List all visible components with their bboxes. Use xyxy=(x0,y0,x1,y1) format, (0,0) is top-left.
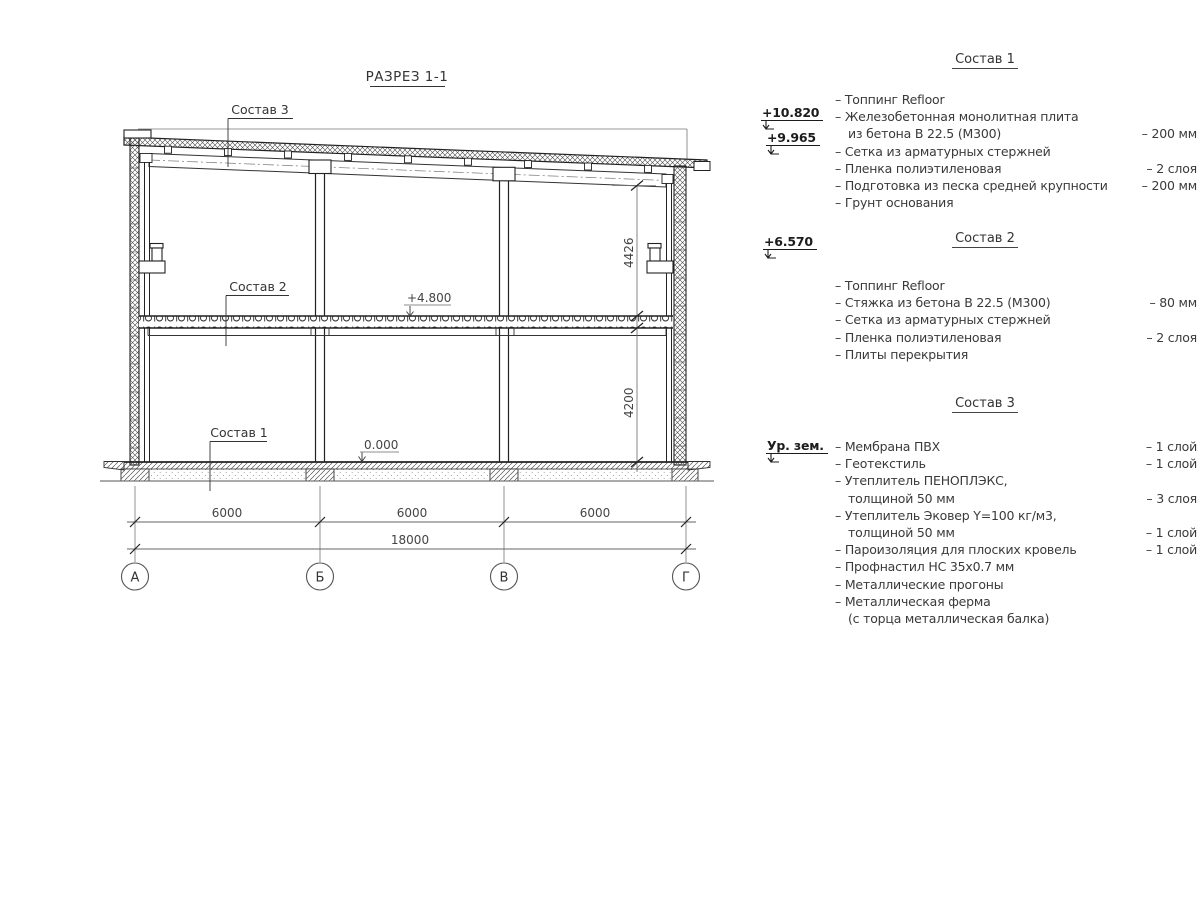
elevation-mark-value: +9.965 xyxy=(766,130,820,146)
composition-item-text: – Пленка полиэтиленовая xyxy=(835,160,1146,177)
composition-item: толщиной 50 мм – 3 слоя xyxy=(835,490,1197,507)
composition-item: – Пленка полиэтиленовая – 2 слоя xyxy=(835,329,1197,346)
composition-item: из бетона В 22.5 (М300) – 200 мм xyxy=(835,125,1197,142)
composition-item-text: – Сетка из арматурных стержней xyxy=(835,311,1197,328)
composition-item-text: толщиной 50 мм xyxy=(835,490,1146,507)
axis-bubbles: А Б В Г xyxy=(122,563,700,590)
composition-item-text: толщиной 50 мм xyxy=(835,524,1146,541)
composition-item-text: – Мембрана ПВХ xyxy=(835,438,1146,455)
composition-item: толщиной 50 мм – 1 слой xyxy=(835,524,1197,541)
dim-total: 18000 xyxy=(391,533,429,547)
composition-item-text: – Плиты перекрытия xyxy=(835,346,1197,363)
right-corbel xyxy=(647,244,673,274)
label-sostav-1: Состав 1 xyxy=(210,425,267,440)
svg-text:РАЗРЕЗ 1-1: РАЗРЕЗ 1-1 xyxy=(366,69,449,85)
composition-item-text: из бетона В 22.5 (М300) xyxy=(835,125,1142,142)
composition-item-qty: – 2 слоя xyxy=(1146,160,1197,177)
elevation-arrow-icon xyxy=(767,453,783,465)
composition-item: – Плиты перекрытия xyxy=(835,346,1197,363)
elevation-mark-value: Ур. зем. xyxy=(766,438,828,454)
elevation-mark-value: +6.570 xyxy=(763,234,817,250)
elevation-arrow-icon xyxy=(767,145,783,157)
composition-item-text: – Подготовка из песка средней крупности xyxy=(835,177,1142,194)
composition-item: – Геотекстиль – 1 слой xyxy=(835,455,1197,472)
composition-item-text: – Металлические прогоны xyxy=(835,576,1197,593)
composition-item-text: – Грунт основания xyxy=(835,194,1197,211)
axis-v: В xyxy=(500,571,509,586)
svg-text:0.000: 0.000 xyxy=(364,438,398,452)
composition-item-text: – Стяжка из бетона В 22.5 (М300) xyxy=(835,294,1149,311)
composition-header: Состав 3 xyxy=(835,396,1135,411)
composition-item-text: – Топпинг Refloor xyxy=(835,91,1197,108)
composition-item-qty: – 1 слой xyxy=(1146,438,1197,455)
composition-item: – Железобетонная монолитная плита xyxy=(835,108,1197,125)
drawing-sheet: { "title": "РАЗРЕЗ 1-1", "drawing": { "s… xyxy=(0,0,1200,900)
composition-rows: – Топпинг Refloor – Железобетонная монол… xyxy=(835,91,1197,211)
elevation-mark-6570: +6.570 xyxy=(763,234,817,250)
composition-item: – Утеплитель Эковер Y=100 кг/м3, xyxy=(835,507,1197,524)
ground-floor xyxy=(100,462,714,482)
composition-item-qty: – 80 мм xyxy=(1149,294,1197,311)
dim-upper-height: 4426 xyxy=(622,237,636,268)
composition-item-qty: – 2 слоя xyxy=(1146,329,1197,346)
composition-header: Состав 1 xyxy=(835,52,1135,67)
composition-item-qty: – 1 слой xyxy=(1146,541,1197,558)
left-wall xyxy=(124,130,151,465)
composition-item-text: (с торца металлическая балка) xyxy=(835,610,1197,627)
dim-lower-height: 4200 xyxy=(622,387,636,418)
elevation-mark-value: +10.820 xyxy=(761,105,823,121)
left-corbel xyxy=(139,244,165,274)
composition-item: – Грунт основания xyxy=(835,194,1197,211)
composition-rows: – Мембрана ПВХ – 1 слой – Геотекстиль – … xyxy=(835,438,1197,627)
composition-item-qty: – 200 мм xyxy=(1142,177,1197,194)
elevation-mark-ground-level: Ур. зем. xyxy=(766,438,828,454)
elevation-mid-slab: +4.800 xyxy=(404,291,451,316)
composition-item: – Мембрана ПВХ – 1 слой xyxy=(835,438,1197,455)
drawing-title: РАЗРЕЗ 1-1 xyxy=(366,69,449,87)
label-sostav-2: Состав 2 xyxy=(229,279,286,294)
sheet-canvas: Состав 3 Состав 2 Состав 1 +4.800 0.000 … xyxy=(0,0,1200,900)
building-section-drawing: Состав 3 Состав 2 Состав 1 +4.800 0.000 … xyxy=(0,0,760,660)
axis-b: Б xyxy=(316,571,325,586)
composition-item: – Стяжка из бетона В 22.5 (М300) – 80 мм xyxy=(835,294,1197,311)
intermediate-floor-slab xyxy=(139,316,673,336)
composition-item-text: – Сетка из арматурных стержней xyxy=(835,143,1197,160)
composition-item: – Сетка из арматурных стержней xyxy=(835,143,1197,160)
dim-span-2: 6000 xyxy=(397,506,428,520)
composition-item-qty: – 200 мм xyxy=(1142,125,1197,142)
composition-item-text: – Утеплитель ПЕНОПЛЭКС, xyxy=(835,472,1197,489)
composition-item: – Металлическая ферма xyxy=(835,593,1197,610)
composition-list-1: Состав 1 – Топпинг Refloor – Железобетон… xyxy=(835,52,1197,211)
elevation-zero: 0.000 xyxy=(359,438,400,462)
axis-g: Г xyxy=(682,571,690,586)
dim-span-1: 6000 xyxy=(212,506,243,520)
dim-span-3: 6000 xyxy=(580,506,611,520)
composition-item-text: – Утеплитель Эковер Y=100 кг/м3, xyxy=(835,507,1197,524)
svg-text:+4.800: +4.800 xyxy=(407,291,451,305)
composition-item-text: – Профнастил НС 35х0.7 мм xyxy=(835,558,1197,575)
composition-list-2: Состав 2 – Топпинг Refloor – Стяжка из б… xyxy=(835,231,1197,363)
composition-item-qty: – 1 слой xyxy=(1146,524,1197,541)
composition-item: – Профнастил НС 35х0.7 мм xyxy=(835,558,1197,575)
composition-header: Состав 2 xyxy=(835,231,1135,246)
composition-item-text: – Топпинг Refloor xyxy=(835,277,1197,294)
composition-item-text: – Геотекстиль xyxy=(835,455,1146,472)
composition-item-text: – Железобетонная монолитная плита xyxy=(835,108,1197,125)
composition-item: – Топпинг Refloor xyxy=(835,91,1197,108)
label-sostav-3: Состав 3 xyxy=(231,102,288,117)
elevation-mark-9965: +9.965 xyxy=(766,130,820,146)
elevation-mark-10820: +10.820 xyxy=(761,105,823,121)
composition-item: – Топпинг Refloor xyxy=(835,277,1197,294)
elevation-arrow-icon xyxy=(764,249,780,261)
composition-item: – Пароизоляция для плоских кровель – 1 с… xyxy=(835,541,1197,558)
composition-item: – Металлические прогоны xyxy=(835,576,1197,593)
composition-rows: – Топпинг Refloor – Стяжка из бетона В 2… xyxy=(835,277,1197,363)
composition-item: – Сетка из арматурных стержней xyxy=(835,311,1197,328)
composition-list-3: Состав 3 – Мембрана ПВХ – 1 слой – Геоте… xyxy=(835,396,1197,627)
composition-item-text: – Металлическая ферма xyxy=(835,593,1197,610)
composition-item: – Подготовка из песка средней крупности … xyxy=(835,177,1197,194)
composition-item: (с торца металлическая балка) xyxy=(835,610,1197,627)
composition-item-text: – Пленка полиэтиленовая xyxy=(835,329,1146,346)
composition-item-qty: – 3 слоя xyxy=(1146,490,1197,507)
composition-item-text: – Пароизоляция для плоских кровель xyxy=(835,541,1146,558)
composition-item: – Пленка полиэтиленовая – 2 слоя xyxy=(835,160,1197,177)
axis-a: А xyxy=(131,571,140,586)
composition-item: – Утеплитель ПЕНОПЛЭКС, xyxy=(835,472,1197,489)
composition-item-qty: – 1 слой xyxy=(1146,455,1197,472)
horizontal-dimension-chains: 6000 6000 6000 18000 xyxy=(127,486,696,562)
